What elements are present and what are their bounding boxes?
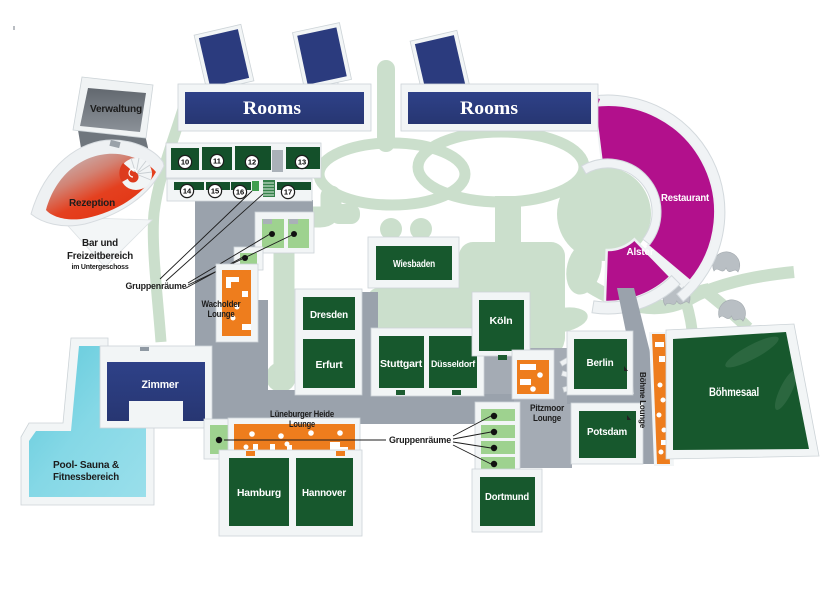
svg-text:15: 15	[211, 187, 219, 196]
svg-text:Dresden: Dresden	[310, 309, 348, 321]
svg-text:16: 16	[236, 188, 244, 197]
svg-text:Böhme Lounge: Böhme Lounge	[638, 372, 647, 429]
svg-text:17: 17	[284, 188, 292, 197]
svg-text:Hannover: Hannover	[302, 487, 346, 499]
svg-text:Lounge: Lounge	[289, 419, 315, 429]
svg-text:Rooms: Rooms	[243, 98, 301, 119]
svg-text:Berlin: Berlin	[587, 357, 614, 369]
svg-text:Dortmund: Dortmund	[485, 491, 529, 503]
svg-text:Potsdam: Potsdam	[587, 426, 627, 438]
svg-text:13: 13	[298, 158, 306, 167]
svg-text:Hamburg: Hamburg	[237, 487, 281, 499]
svg-text:Lounge: Lounge	[208, 309, 235, 319]
svg-text:Freizeitbereich: Freizeitbereich	[67, 250, 133, 262]
svg-text:10: 10	[181, 158, 189, 167]
svg-text:Böhmesaal: Böhmesaal	[709, 385, 759, 399]
svg-text:Köln: Köln	[490, 315, 513, 327]
svg-text:Bar und: Bar und	[82, 237, 118, 249]
svg-text:Wacholder: Wacholder	[202, 299, 242, 309]
svg-text:Lüneburger Heide: Lüneburger Heide	[270, 409, 334, 419]
svg-text:Restaurant: Restaurant	[661, 192, 710, 204]
svg-text:14: 14	[183, 187, 192, 196]
svg-text:Pool- Sauna &: Pool- Sauna &	[53, 459, 120, 471]
svg-text:Stuttgart: Stuttgart	[380, 358, 423, 370]
svg-text:Wiesbaden: Wiesbaden	[393, 258, 435, 270]
svg-text:12: 12	[248, 158, 256, 167]
svg-text:11: 11	[213, 157, 221, 166]
svg-text:Gruppenräume: Gruppenräume	[389, 435, 451, 446]
svg-text:Alster: Alster	[627, 246, 654, 258]
svg-text:Lounge: Lounge	[533, 413, 561, 423]
svg-text:Verwaltung: Verwaltung	[90, 103, 142, 115]
svg-text:Erfurt: Erfurt	[316, 359, 344, 371]
svg-text:Düsseldorf: Düsseldorf	[431, 359, 476, 370]
svg-text:Rezeption: Rezeption	[69, 197, 115, 209]
svg-text:im Untergeschoss: im Untergeschoss	[72, 264, 129, 271]
svg-text:Fitnessbereich: Fitnessbereich	[53, 471, 119, 483]
svg-text:Rooms: Rooms	[460, 98, 518, 119]
svg-text:Pitzmoor: Pitzmoor	[530, 403, 565, 413]
svg-text:Zimmer: Zimmer	[142, 379, 180, 391]
svg-text:Gruppenräume: Gruppenräume	[126, 281, 187, 292]
